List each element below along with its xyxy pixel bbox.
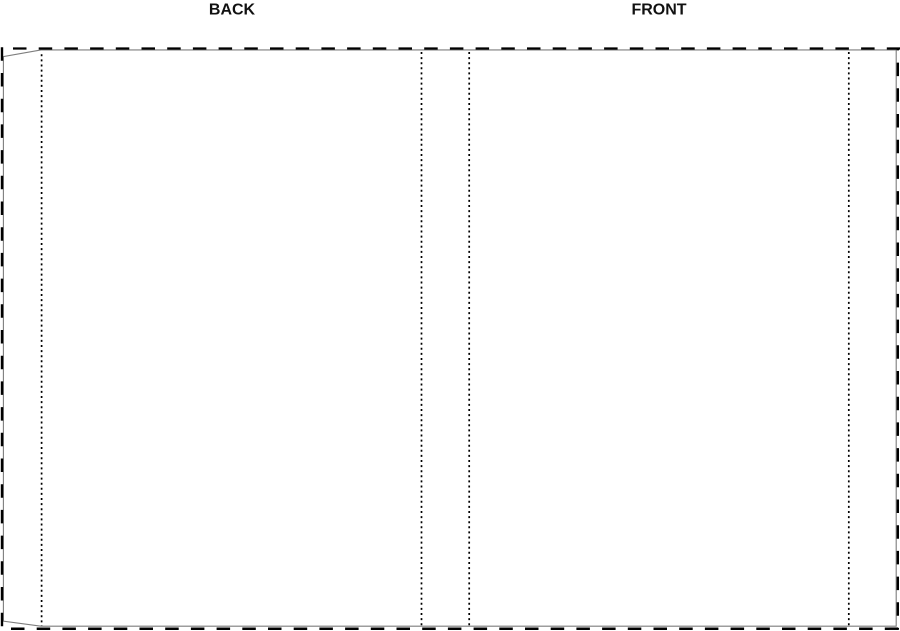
svg-text:FRONT: FRONT <box>631 2 686 19</box>
svg-text:BACK: BACK <box>209 2 256 19</box>
